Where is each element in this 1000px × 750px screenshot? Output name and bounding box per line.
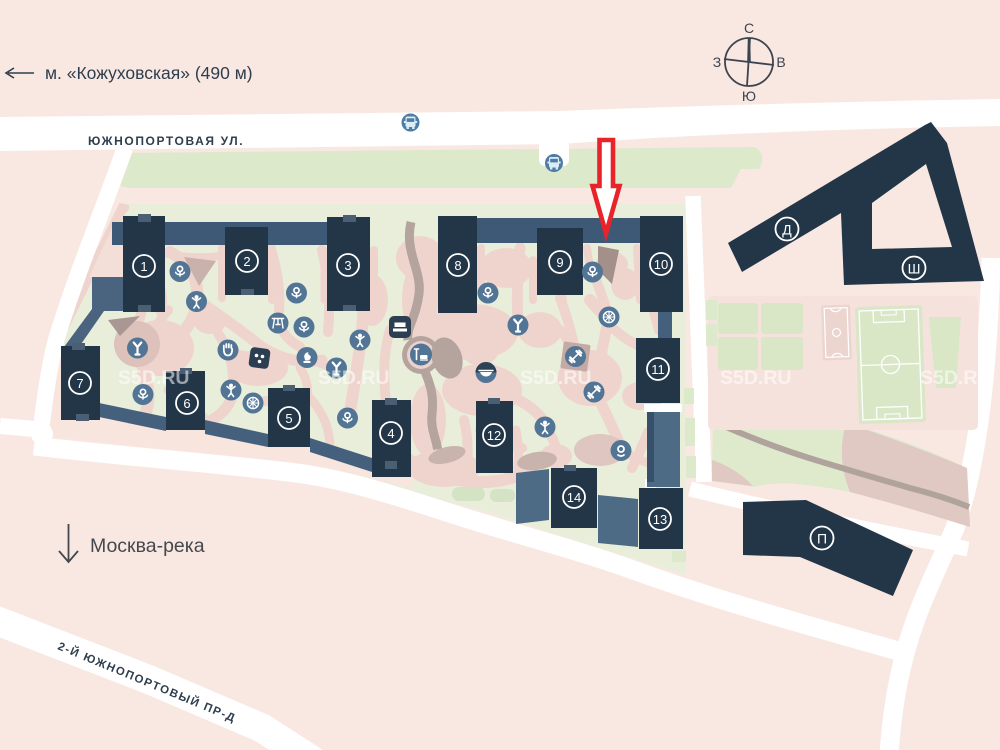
svg-text:Москва-река: Москва-река	[90, 535, 205, 557]
svg-text:12: 12	[487, 428, 501, 443]
svg-text:ЮЖНОПОРТОВАЯ УЛ.: ЮЖНОПОРТОВАЯ УЛ.	[88, 134, 244, 148]
svg-text:С: С	[744, 20, 754, 36]
svg-text:S5D.RU: S5D.RU	[118, 367, 190, 389]
svg-text:3: 3	[344, 258, 351, 273]
svg-text:м. «Кожуховская» (490 м): м. «Кожуховская» (490 м)	[45, 63, 253, 83]
svg-text:14: 14	[567, 490, 581, 505]
svg-text:10: 10	[654, 257, 668, 272]
svg-text:S5D.RU: S5D.RU	[720, 367, 792, 389]
svg-text:6: 6	[183, 396, 190, 411]
svg-text:П: П	[817, 531, 827, 547]
svg-text:7: 7	[76, 376, 83, 391]
svg-text:S5D.RU: S5D.RU	[920, 367, 992, 389]
svg-text:2: 2	[243, 254, 250, 269]
svg-text:Ш: Ш	[908, 261, 921, 277]
svg-text:З: З	[713, 54, 721, 70]
svg-text:S5D.RU: S5D.RU	[520, 367, 592, 389]
svg-text:11: 11	[651, 362, 665, 377]
svg-text:4: 4	[387, 426, 394, 441]
svg-text:13: 13	[653, 512, 667, 527]
svg-text:S5D.RU: S5D.RU	[318, 367, 390, 389]
svg-text:5: 5	[285, 411, 292, 426]
svg-text:В: В	[776, 54, 785, 70]
svg-text:Ю: Ю	[742, 88, 756, 104]
svg-text:1: 1	[140, 259, 147, 274]
svg-text:Д: Д	[782, 222, 792, 238]
svg-text:8: 8	[454, 258, 461, 273]
svg-text:9: 9	[556, 255, 563, 270]
